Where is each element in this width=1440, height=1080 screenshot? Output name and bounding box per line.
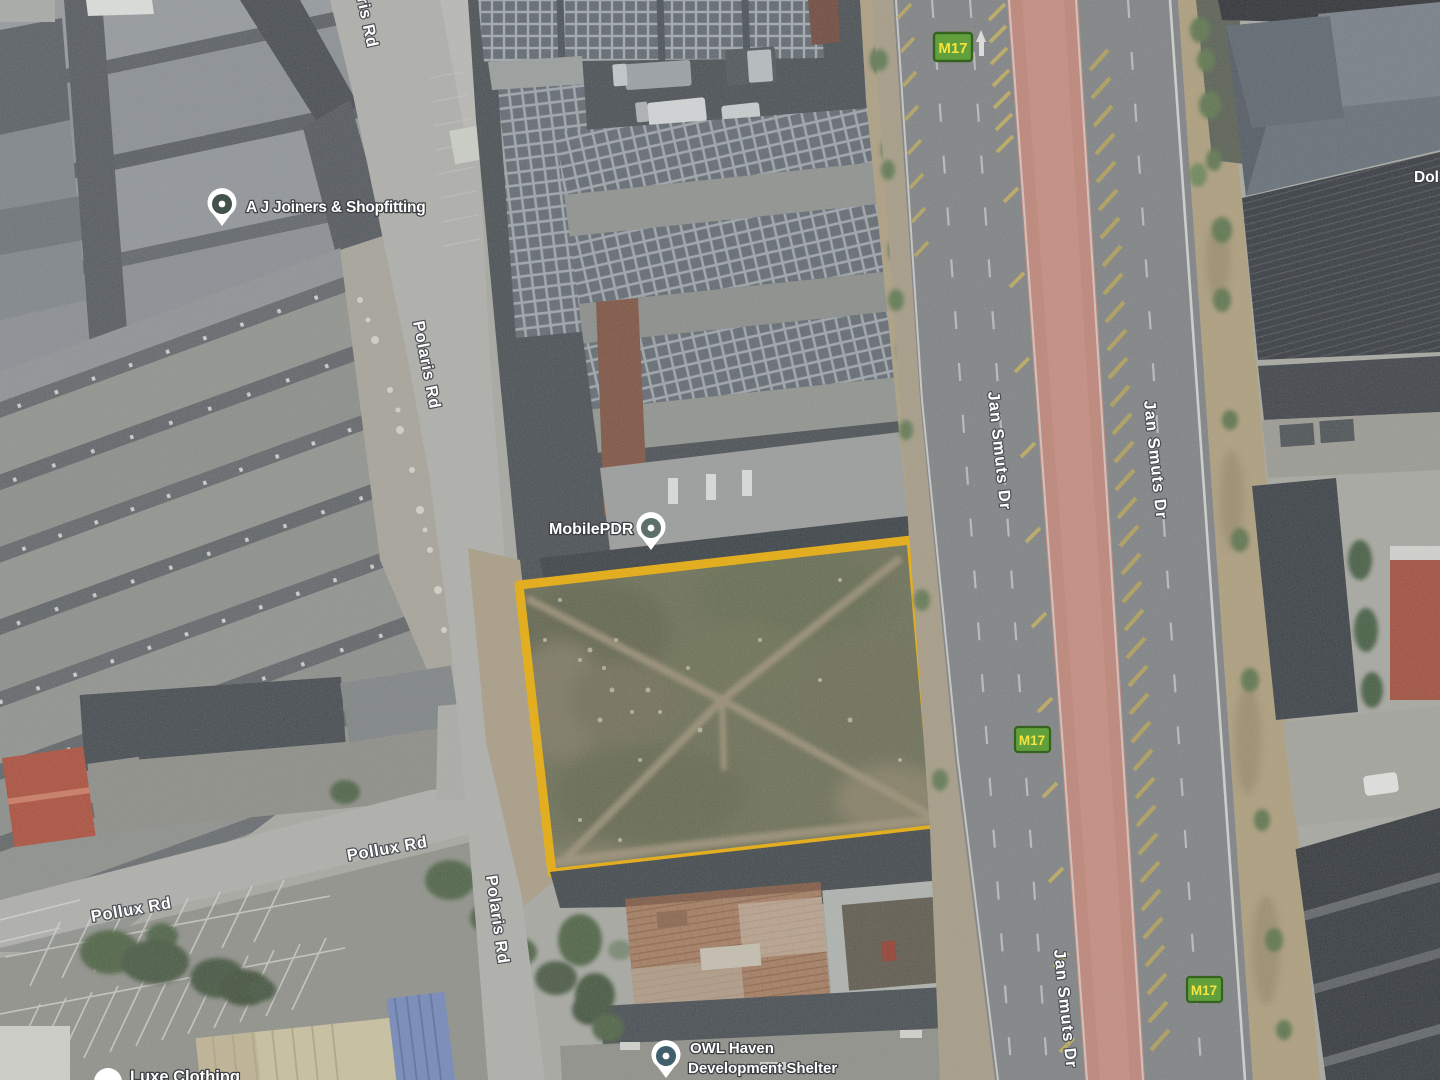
svg-text:OWL Haven: OWL Haven	[690, 1040, 774, 1057]
svg-text:M17: M17	[1019, 733, 1045, 748]
svg-text:MobilePDR: MobilePDR	[549, 521, 634, 538]
svg-text:Luxe Clothing: Luxe Clothing	[130, 1068, 240, 1080]
svg-text:Dol: Dol	[1414, 169, 1439, 186]
svg-text:M17: M17	[1191, 983, 1217, 998]
svg-text:Development Shelter: Development Shelter	[688, 1060, 837, 1077]
svg-text:M17: M17	[938, 40, 967, 57]
svg-text:A J Joiners & Shopfitting: A J Joiners & Shopfitting	[246, 199, 426, 216]
